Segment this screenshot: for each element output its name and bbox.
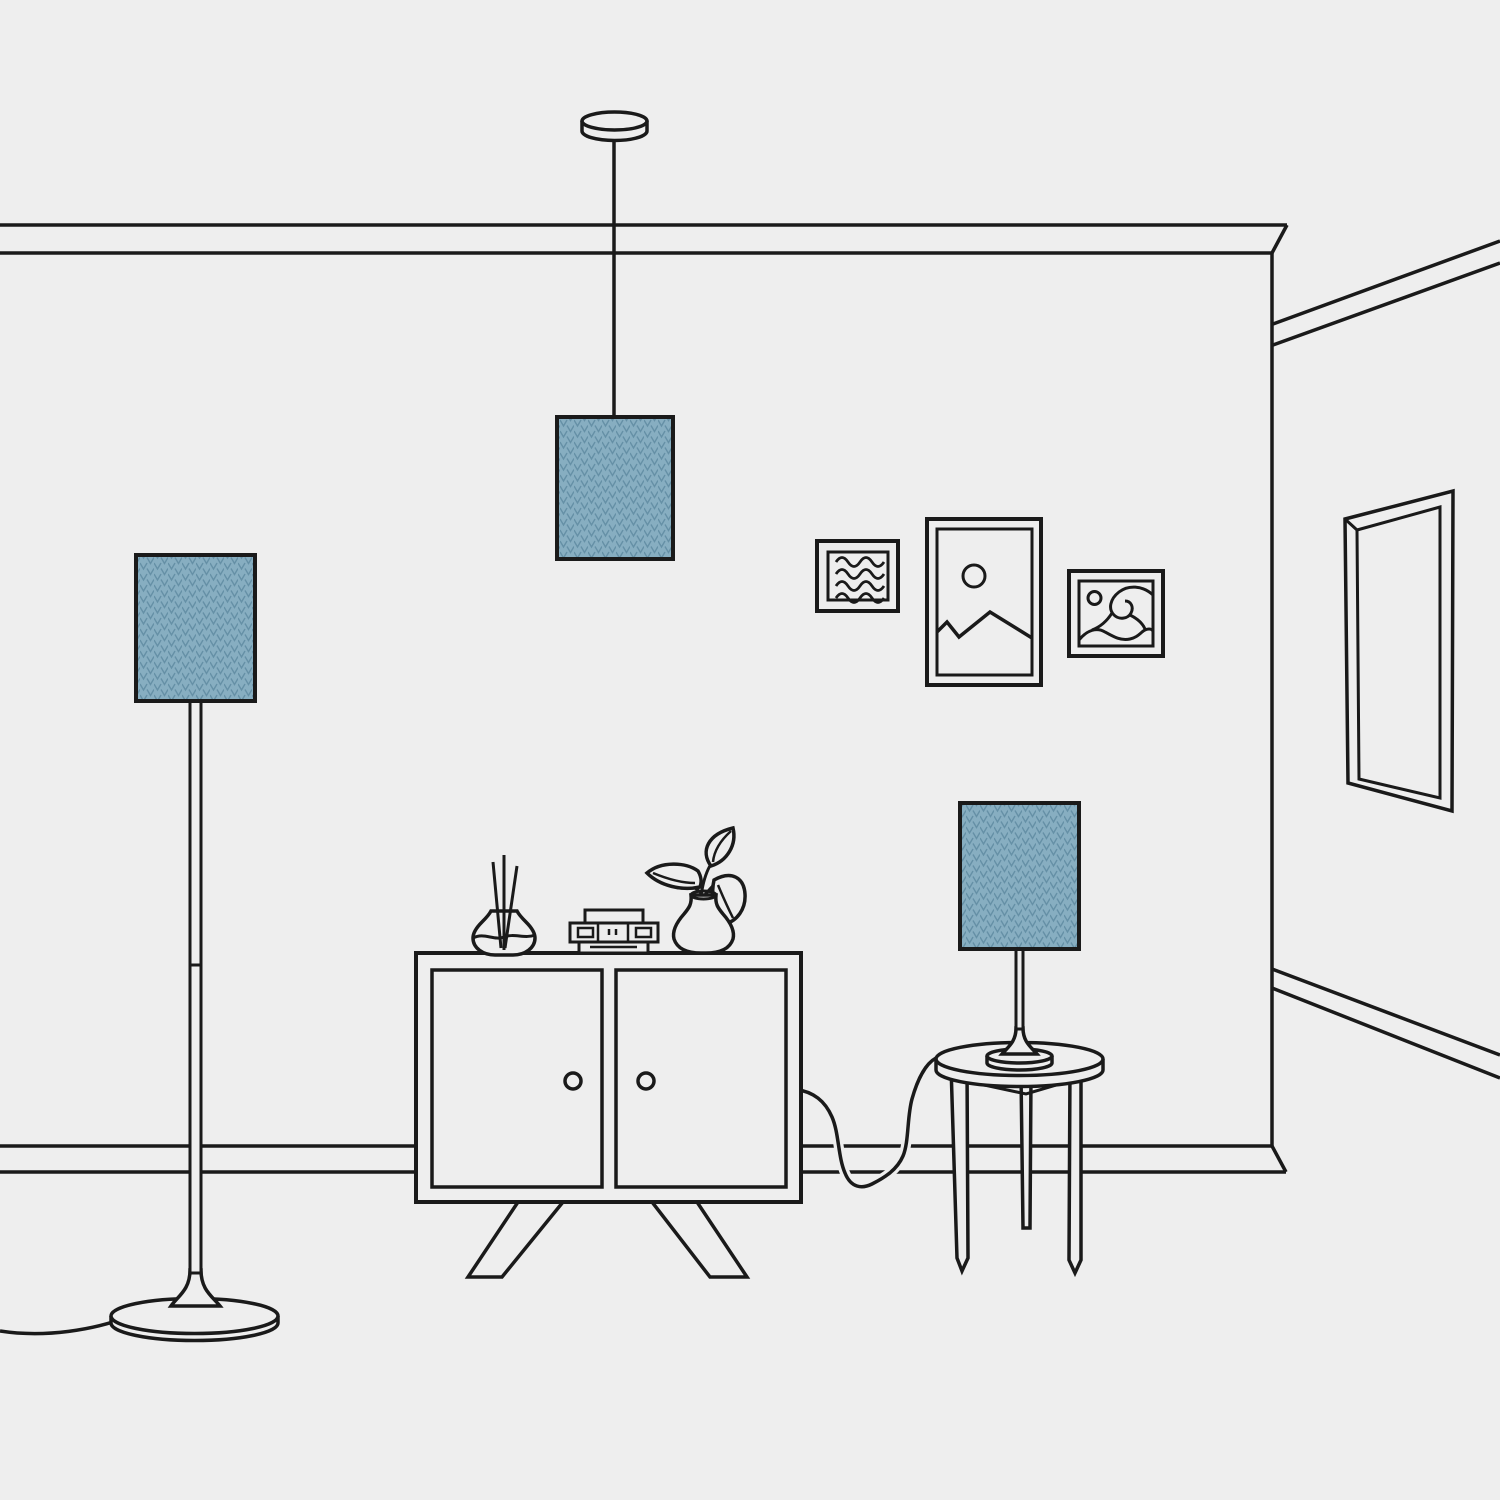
ceiling-mount	[582, 112, 647, 130]
wall-mirror	[1345, 491, 1453, 811]
cabinet-knob-left	[565, 1073, 581, 1089]
floor-lamp-pole	[190, 701, 201, 1273]
frame-border	[927, 519, 1041, 685]
cabinet-knob-right	[638, 1073, 654, 1089]
room-illustration: Minimal line-art illustration of a livin…	[0, 0, 1500, 1500]
picture-frame-waves	[817, 541, 898, 611]
picture-frame-mountain	[927, 519, 1041, 685]
table-leg-center	[1021, 1075, 1031, 1228]
mirror-outer-frame	[1345, 491, 1453, 811]
picture-frame-wave	[1069, 571, 1163, 656]
frame-border	[1069, 571, 1163, 656]
floor-lamp-shade	[136, 555, 255, 701]
pendant-shade	[557, 417, 673, 559]
book-top	[585, 910, 643, 923]
book-middle	[570, 923, 658, 942]
table-leg-right	[1069, 1066, 1081, 1273]
table-lamp-stem	[1016, 949, 1023, 1029]
table-lamp-shade	[960, 803, 1079, 949]
